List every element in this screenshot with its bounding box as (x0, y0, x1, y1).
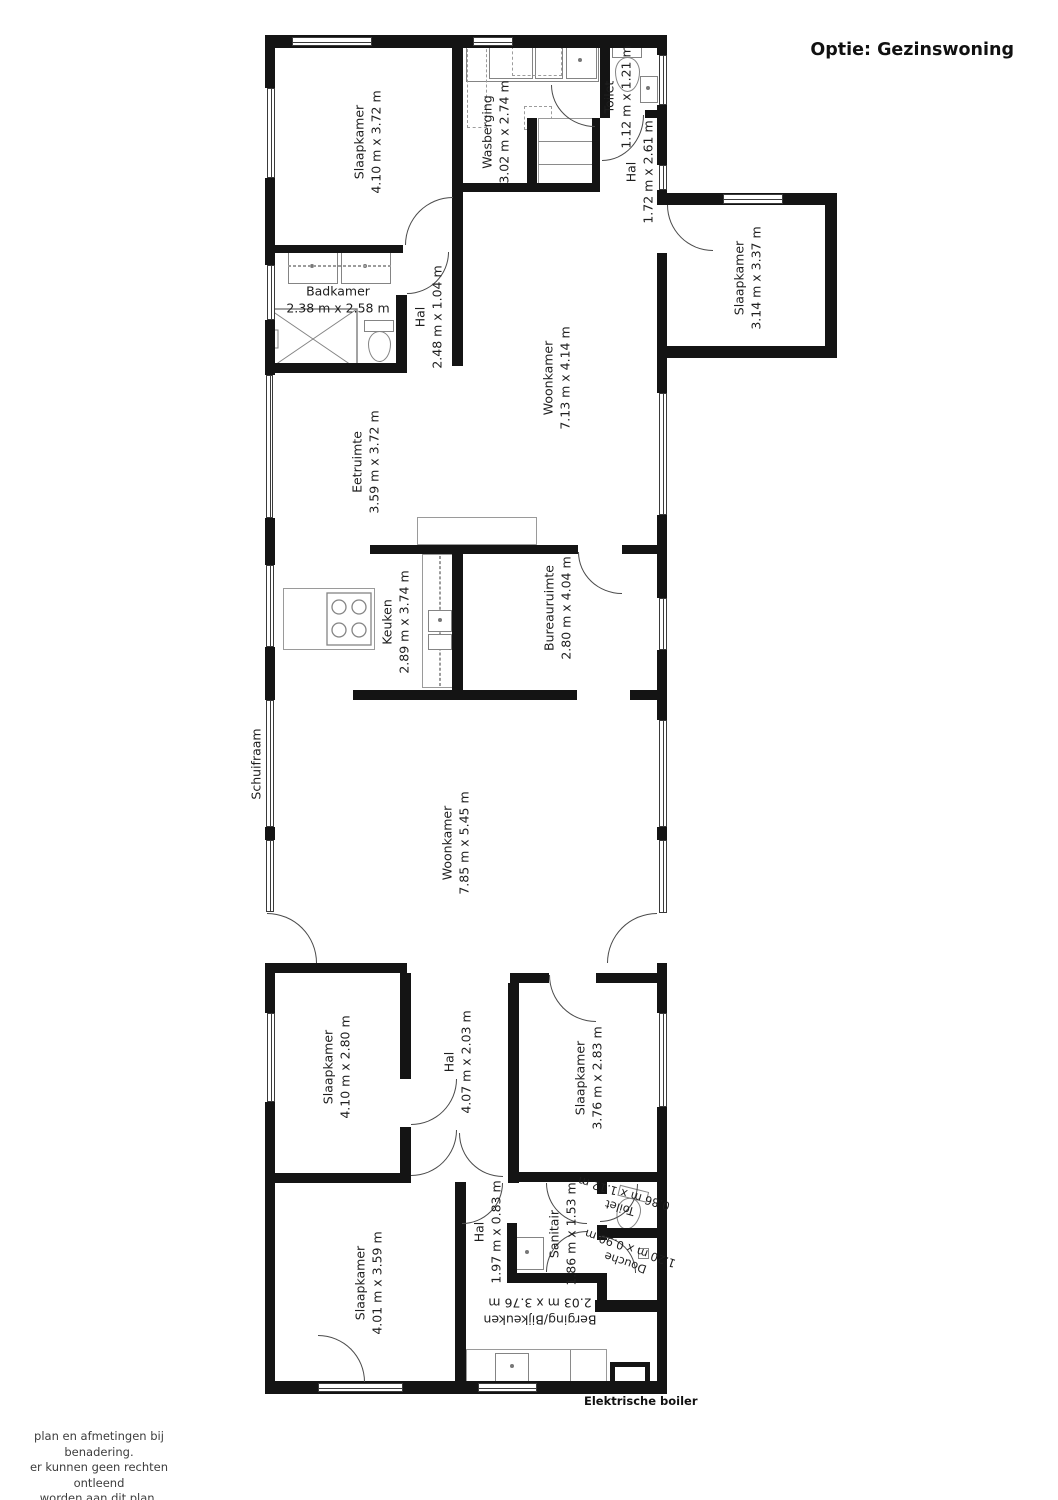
room-label-slaapkamer-links: Slaapkamer 4.10 m x 2.80 m (321, 1015, 354, 1118)
wall (507, 1223, 517, 1278)
room-label-slaapkamer-tr: Slaapkamer 3.14 m x 3.37 m (732, 226, 765, 329)
room-dims: 3.59 m x 3.72 m (366, 410, 383, 513)
room-dims: 2.48 m x 1.04 m (429, 265, 446, 368)
window (478, 1383, 537, 1392)
toilet-bowl-icon (368, 331, 391, 362)
room-name: Wasberging (480, 80, 497, 183)
schuifraam-label: Schuifraam (249, 728, 264, 799)
window (266, 375, 273, 518)
room-name: Sanitair (547, 1182, 564, 1285)
door-arc (405, 197, 453, 245)
room-name: Bureauruimte (542, 556, 559, 659)
window (659, 598, 667, 650)
room-name: Berging/Bijkeuken (484, 1311, 597, 1328)
faucet-dot (438, 618, 442, 622)
window (292, 37, 372, 46)
disclaimer-line: plan en afmetingen bij benadering. (6, 1429, 192, 1460)
wall (265, 963, 407, 973)
wall (645, 110, 667, 118)
kitchen-sink-icon (428, 634, 452, 650)
room-name: Woonkamer (440, 791, 457, 894)
room-name: Badkamer (286, 284, 389, 301)
room-dims: 4.10 m x 3.72 m (368, 90, 385, 193)
wall (657, 827, 667, 840)
window (267, 265, 275, 320)
entry-steps (538, 118, 599, 192)
room-label-hal-mid: Hal 2.48 m x 1.04 m (413, 265, 446, 368)
wall (370, 545, 578, 554)
room-dims: 2.80 m x 4.04 m (558, 556, 575, 659)
room-label-hal-midden: Hal 4.07 m x 2.03 m (442, 1010, 475, 1113)
wall (657, 35, 667, 55)
room-label-wasberging: Wasberging 3.02 m x 2.74 m (480, 80, 513, 183)
step-line (538, 141, 599, 142)
window (723, 194, 783, 204)
room-name: Hal (472, 1180, 489, 1283)
sliding-window (266, 840, 274, 912)
wall (452, 35, 463, 366)
faucet-dot (578, 58, 582, 62)
room-name: Slaapkamer (573, 1026, 590, 1129)
room-label-woonkamer: Woonkamer 7.85 m x 5.45 m (440, 791, 473, 894)
room-dims: 1.72 m x 2.61 m (640, 120, 657, 223)
window (659, 393, 667, 515)
window (266, 565, 274, 647)
room-label-slaapkamer-onder: Slaapkamer 4.01 m x 3.59 m (353, 1231, 386, 1334)
wall (265, 245, 403, 253)
wall (596, 973, 657, 983)
wall (630, 690, 667, 700)
room-dims: 2.38 m x 2.58 m (286, 300, 389, 317)
room-name: Toilet (602, 45, 619, 148)
room-label-badkamer: Badkamer 2.38 m x 2.58 m (286, 284, 389, 317)
disclaimer: plan en afmetingen bij benadering. er ku… (6, 1429, 192, 1500)
wall (592, 118, 600, 183)
room-dims: 2.89 m x 3.74 m (396, 570, 413, 673)
room-label-bureauruimte: Bureauruimte 2.80 m x 4.04 m (542, 556, 575, 659)
room-dims: 3.76 m x 2.83 m (589, 1026, 606, 1129)
wall (508, 983, 519, 1183)
wall (657, 515, 667, 598)
sliding-window (266, 700, 274, 827)
window (318, 1383, 403, 1392)
room-name: Hal (413, 265, 430, 368)
room-name: Slaapkamer (352, 90, 369, 193)
wall (657, 253, 667, 346)
room-dims: 3.14 m x 3.37 m (748, 226, 765, 329)
wall (622, 545, 667, 554)
window (659, 1013, 667, 1107)
faucet-dot (646, 86, 650, 90)
disclaimer-line: er kunnen geen rechten ontleend (6, 1460, 192, 1491)
door-arc (607, 913, 657, 963)
room-name: Hal (442, 1010, 459, 1113)
room-label-hal-top: Hal 1.72 m x 2.61 m (624, 120, 657, 223)
counter-dashed-line (288, 265, 391, 267)
room-name: Slaapkamer (321, 1015, 338, 1118)
room-dims: 2.03 m x 3.76 m (484, 1295, 597, 1312)
window (659, 55, 667, 105)
room-name: Slaapkamer (353, 1231, 370, 1334)
room-dims: 1.97 m x 0.83 m (488, 1180, 505, 1283)
wall (265, 827, 275, 840)
room-dims: 7.85 m x 5.45 m (456, 791, 473, 894)
room-name: Keuken (380, 570, 397, 673)
sideboard (417, 517, 537, 545)
utility-sink-icon (495, 1353, 529, 1384)
door-arc (459, 1133, 503, 1177)
faucet-dot (510, 1364, 514, 1368)
room-label-woonkamer-boven: Woonkamer 7.13 m x 4.14 m (541, 326, 574, 429)
room-label-slaapkamer-rechts: Slaapkamer 3.76 m x 2.83 m (573, 1026, 606, 1129)
room-dims: 4.10 m x 2.80 m (337, 1015, 354, 1118)
wall (265, 647, 275, 700)
wall (265, 518, 275, 565)
wall (265, 363, 407, 373)
stove-icon (326, 592, 372, 646)
window (267, 88, 275, 178)
room-dims: 4.01 m x 3.59 m (369, 1231, 386, 1334)
wall (527, 183, 600, 192)
wall (396, 295, 407, 373)
room-label-berging: Berging/Bijkeuken 2.03 m x 3.76 m (484, 1295, 597, 1328)
wall (463, 183, 527, 192)
boiler-label: Elektrische boiler (584, 1394, 698, 1408)
wall (400, 973, 411, 1079)
room-label-hal-onder: Hal 1.97 m x 0.83 m (472, 1180, 505, 1283)
floor-plan: Slaapkamer 4.10 m x 3.72 m Wasberging 3.… (0, 0, 1058, 1500)
door-arc (267, 913, 317, 963)
door-arc (411, 1130, 457, 1176)
wall (265, 35, 275, 88)
bathtub-icon (268, 308, 358, 370)
room-label-keuken: Keuken 2.89 m x 3.74 m (380, 570, 413, 673)
window (659, 840, 667, 913)
wall (657, 650, 667, 720)
wall (452, 554, 463, 690)
wall (353, 690, 577, 700)
door-arc (549, 975, 596, 1022)
window (267, 1013, 275, 1102)
disclaimer-line: worden aan dit plan. (6, 1491, 192, 1500)
wall (527, 118, 537, 192)
room-name: Eetruimte (350, 410, 367, 513)
wall (657, 963, 667, 1013)
wall (265, 1102, 275, 1394)
room-dims: 4.07 m x 2.03 m (458, 1010, 475, 1113)
room-name: Woonkamer (541, 326, 558, 429)
cabinet-dashed-outline (512, 46, 562, 76)
wall (825, 193, 837, 358)
wall (595, 1300, 657, 1312)
window (659, 720, 667, 827)
door-arc (667, 205, 713, 251)
page-title: Optie: Gezinswoning (810, 40, 1014, 60)
door-arc (318, 1335, 365, 1382)
wall (265, 1173, 411, 1183)
window (473, 37, 513, 46)
room-name: Hal (624, 120, 641, 223)
faucet-dot (525, 1250, 529, 1254)
step-line (538, 164, 599, 165)
window (659, 165, 667, 190)
room-dims: 7.13 m x 4.14 m (557, 326, 574, 429)
room-label-slaapkamer-tl: Slaapkamer 4.10 m x 3.72 m (352, 90, 385, 193)
room-label-eetruimte: Eetruimte 3.59 m x 3.72 m (350, 410, 383, 513)
door-arc (578, 552, 622, 594)
room-name: Slaapkamer (732, 226, 749, 329)
wall (657, 358, 667, 393)
room-dims: 3.02 m x 2.74 m (496, 80, 513, 183)
wall (657, 346, 837, 358)
wall (510, 973, 549, 983)
